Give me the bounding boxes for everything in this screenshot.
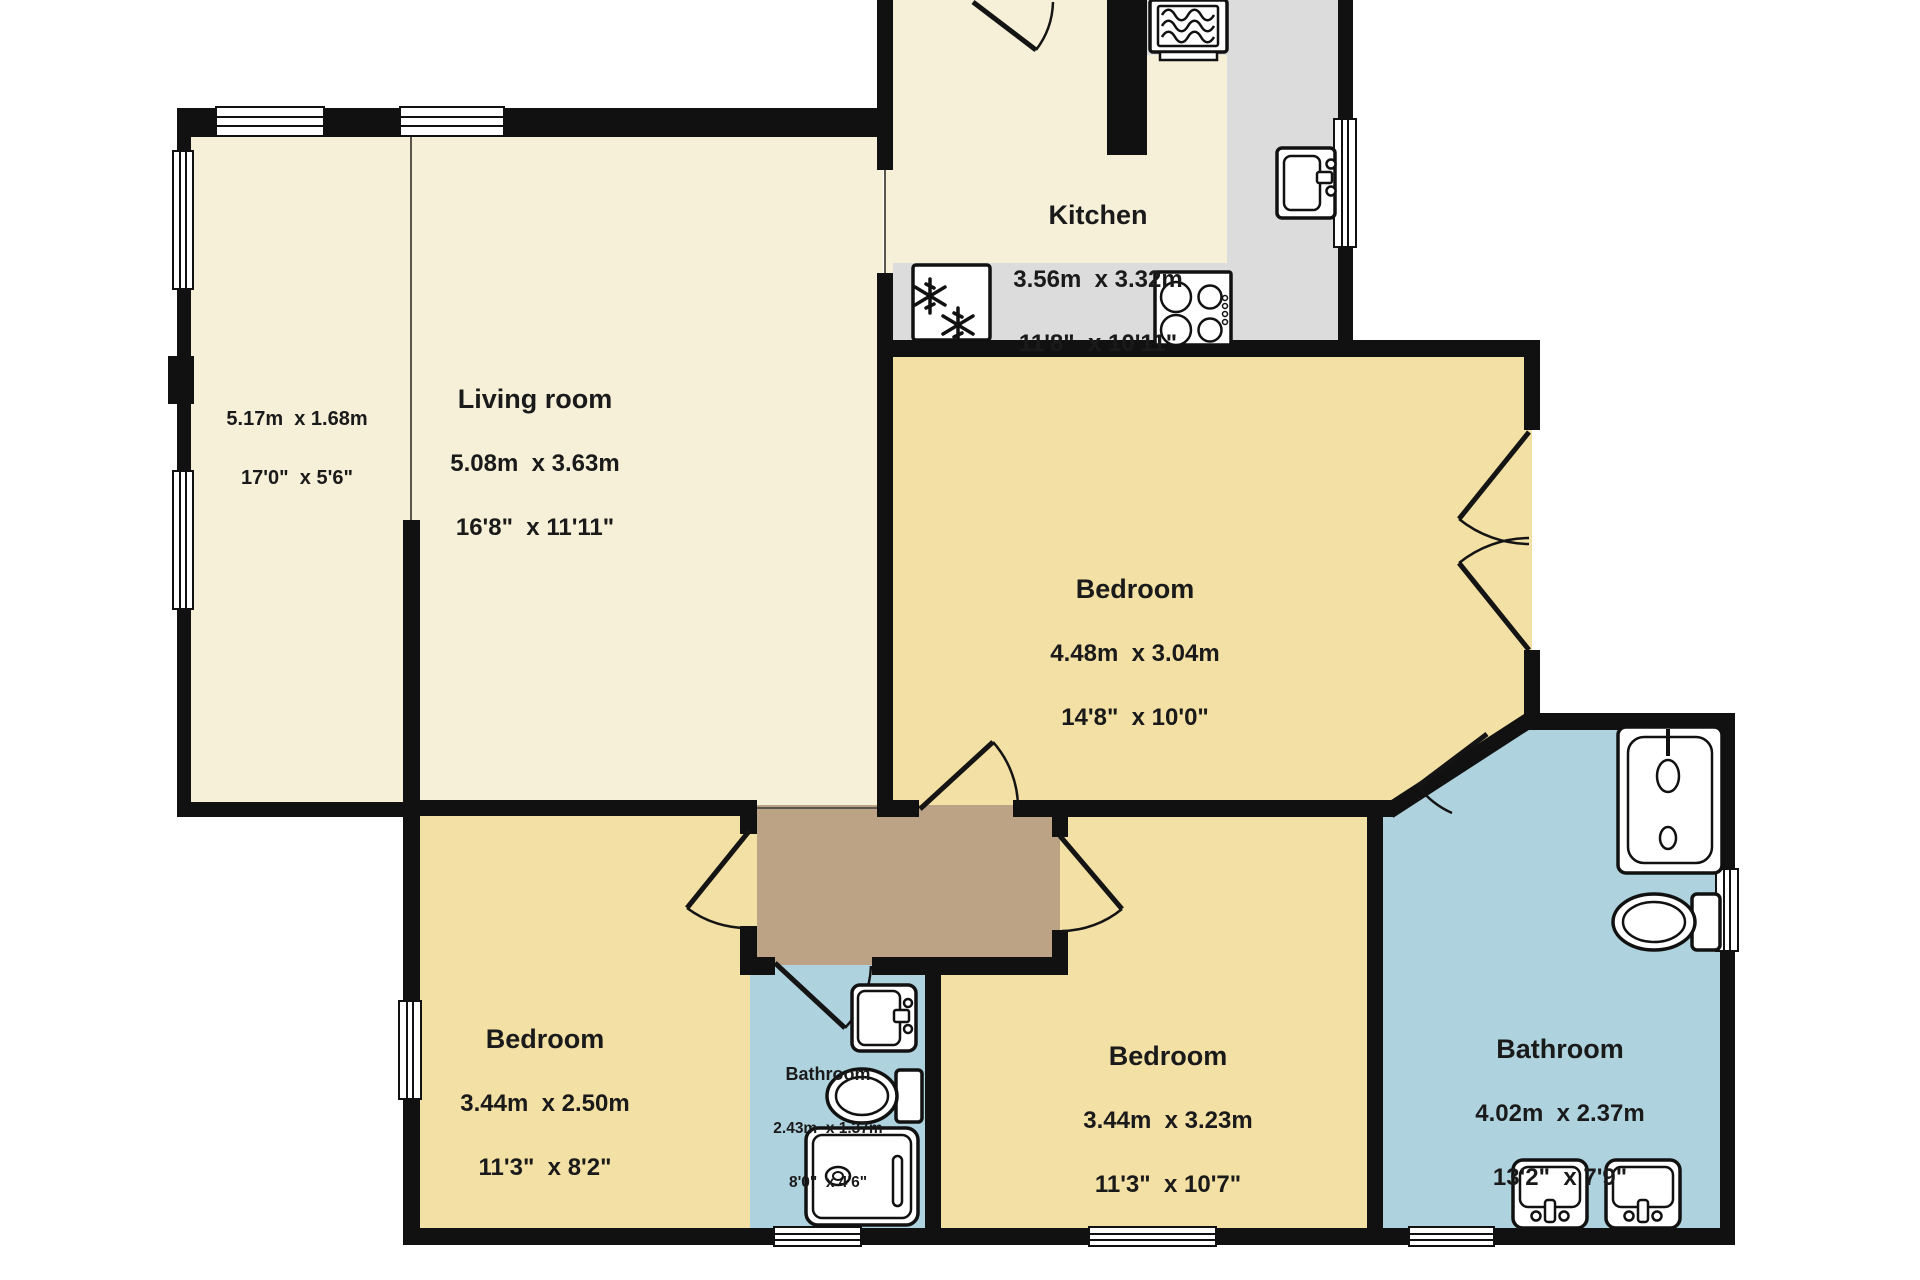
room-label-bedroom-2: Bedroom 3.44m x 2.50m 11'3" x 8'2": [395, 988, 695, 1218]
kitchen-doorway-line: [884, 168, 886, 275]
room-name: Bedroom: [985, 574, 1285, 604]
hallway-floor: [750, 805, 1068, 965]
conservatory-bottom-wall: [177, 802, 420, 817]
hallway-bottom-wall-left: [740, 957, 775, 975]
hallway-bottom-wall-right: [872, 957, 1068, 975]
room-label-kitchen: Kitchen 3.56m x 3.32m 11'8" x 10'11": [948, 164, 1248, 394]
room-dim-imperial: 16'8" x 11'11": [385, 514, 685, 542]
room-name: Bathroom: [760, 1064, 896, 1084]
kitchen-interior-stub: [1107, 0, 1147, 155]
room-label-bedroom-3: Bedroom 3.44m x 3.23m 11'3" x 10'7": [1018, 1005, 1318, 1235]
window-icon: [1715, 868, 1739, 952]
bedroom-3-floor-upper: [1060, 810, 1375, 970]
room-dim-imperial: 14'8" x 10'0": [985, 704, 1285, 732]
room-name: Bedroom: [1018, 1041, 1318, 1071]
room-dim-metric: 3.56m x 3.32m: [948, 266, 1248, 294]
bedroom1-bottom-wall-right: [1013, 800, 1395, 817]
room-dim-metric: 3.44m x 2.50m: [395, 1090, 695, 1118]
hallway-left-stub: [740, 800, 757, 834]
bathroom-main-top-wall: [1527, 713, 1735, 730]
hallway-right-wall-upper: [1052, 813, 1068, 837]
room-name: Kitchen: [948, 200, 1248, 230]
room-dim-metric: 3.44m x 3.23m: [1018, 1107, 1318, 1135]
window-icon: [172, 470, 194, 610]
hallway-living-threshold-line: [757, 807, 877, 809]
room-name: Bedroom: [395, 1024, 695, 1054]
right-exterior-wall: [1720, 713, 1735, 1245]
room-dim-imperial: 13'2" x 7'9": [1410, 1164, 1710, 1192]
room-dim-metric: 4.02m x 2.37m: [1410, 1100, 1710, 1128]
room-dim-metric: 5.08m x 3.63m: [385, 450, 685, 478]
room-dim-metric: 4.48m x 3.04m: [985, 640, 1285, 668]
room-dim-metric: 5.17m x 1.68m: [197, 408, 397, 431]
room-dim-imperial: 11'8" x 10'11": [948, 330, 1248, 358]
kitchen-counter-top: [1147, 0, 1345, 55]
room-dim-metric: 2.43m x 1.37m: [760, 1120, 896, 1138]
bedroom1-right-wall-upper: [1524, 340, 1540, 430]
window-icon: [773, 1226, 862, 1247]
room-name: Living room: [385, 384, 685, 414]
kitchen-right-wall-upper: [1338, 0, 1353, 120]
window-icon: [215, 106, 325, 137]
living-room-bottom-wall: [403, 800, 757, 816]
bedroom1-bottom-wall-left: [877, 800, 919, 817]
room-label-bedroom-1: Bedroom 4.48m x 3.04m 14'8" x 10'0": [985, 538, 1285, 768]
room-dim-imperial: 11'3" x 8'2": [395, 1154, 695, 1182]
bathroom-small-right-wall: [925, 957, 941, 1245]
left-wall-pillar: [168, 356, 194, 404]
window-icon: [172, 150, 194, 290]
room-dim-imperial: 17'0" x 5'6": [197, 467, 397, 490]
room-label-living-room: Living room 5.08m x 3.63m 16'8" x 11'11": [385, 348, 685, 578]
room-label-bathroom-small: Bathroom 2.43m x 1.37m 8'0" x 4'6": [760, 1028, 896, 1228]
room-dim-imperial: 11'3" x 10'7": [1018, 1171, 1318, 1199]
room-name: Bathroom: [1410, 1034, 1710, 1064]
window-icon: [399, 106, 505, 137]
room-dim-imperial: 8'0" x 4'6": [760, 1174, 896, 1192]
bedroom3-bathroom-divider-wall: [1367, 802, 1383, 1245]
room-label-bathroom-main: Bathroom 4.02m x 2.37m 13'2" x 7'9": [1410, 998, 1710, 1228]
room-label-conservatory: 5.17m x 1.68m 17'0" x 5'6": [197, 372, 397, 526]
window-icon: [1333, 118, 1357, 248]
floor-plan: Kitchen 3.56m x 3.32m 11'8" x 10'11" Liv…: [0, 0, 1920, 1280]
kitchen-left-wall-upper: [877, 0, 893, 170]
window-icon: [1408, 1226, 1495, 1247]
